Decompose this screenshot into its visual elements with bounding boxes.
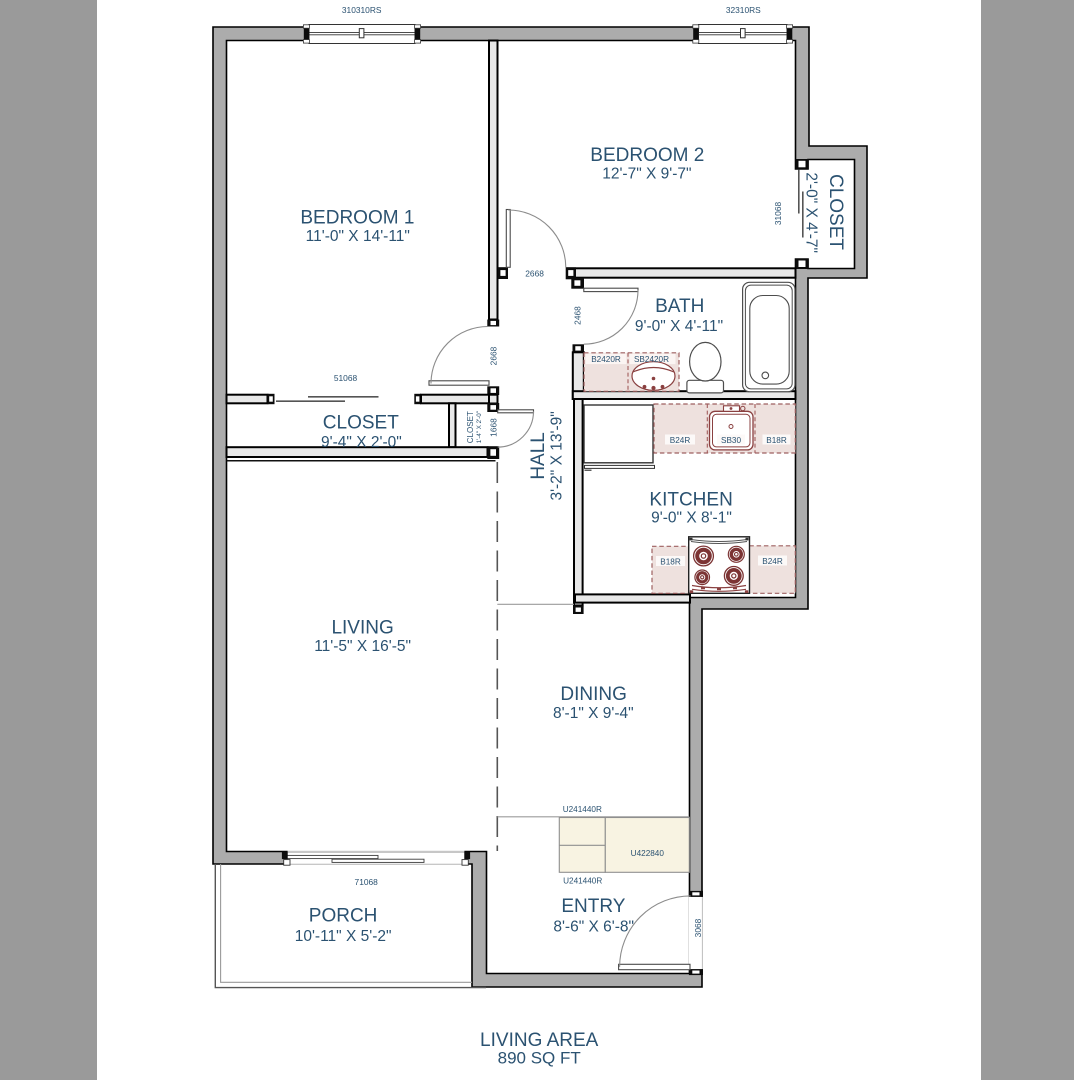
svg-text:31068: 31068 [773, 202, 783, 226]
svg-text:LIVING: LIVING [331, 618, 393, 639]
svg-text:ENTRY: ENTRY [561, 896, 625, 917]
svg-text:2'-0" X 4'-7": 2'-0" X 4'-7" [803, 172, 820, 253]
svg-text:2468: 2468 [573, 306, 583, 325]
svg-text:DINING: DINING [560, 684, 627, 705]
svg-text:9'-0" X 4'-11": 9'-0" X 4'-11" [635, 318, 723, 335]
svg-text:CLOSET: CLOSET [466, 411, 475, 443]
svg-text:51068: 51068 [334, 373, 358, 383]
svg-text:U422840: U422840 [631, 849, 665, 858]
svg-text:PORCH: PORCH [309, 906, 378, 927]
svg-text:9'-4" X 2'-0": 9'-4" X 2'-0" [321, 434, 402, 451]
svg-text:CLOSET: CLOSET [323, 413, 399, 434]
svg-text:U241440R: U241440R [563, 877, 602, 886]
svg-text:9'-0" X 8'-1": 9'-0" X 8'-1" [651, 509, 732, 526]
svg-text:8'-1" X 9'-4": 8'-1" X 9'-4" [553, 705, 634, 722]
svg-text:KITCHEN: KITCHEN [649, 489, 732, 510]
svg-text:B2420R: B2420R [591, 355, 621, 364]
svg-text:32310RS: 32310RS [726, 5, 761, 15]
svg-text:3068: 3068 [693, 918, 703, 937]
svg-text:8'-6" X 6'-8": 8'-6" X 6'-8" [553, 918, 634, 935]
svg-text:B24R: B24R [670, 436, 691, 445]
svg-text:2668: 2668 [489, 346, 499, 365]
svg-text:310310RS: 310310RS [342, 5, 382, 15]
svg-text:890 SQ FT: 890 SQ FT [498, 1049, 581, 1068]
svg-text:2668: 2668 [525, 269, 544, 279]
svg-text:BEDROOM 2: BEDROOM 2 [590, 145, 704, 166]
svg-text:B24R: B24R [762, 557, 783, 566]
svg-text:1668: 1668 [489, 418, 499, 437]
svg-text:SB30: SB30 [721, 436, 741, 445]
svg-text:CLOSET: CLOSET [825, 174, 846, 250]
svg-text:B18R: B18R [660, 558, 681, 567]
svg-text:11'-5" X 16'-5": 11'-5" X 16'-5" [314, 638, 411, 655]
svg-text:HALL: HALL [528, 432, 549, 480]
svg-text:1'-4" X 2'-0": 1'-4" X 2'-0" [476, 411, 483, 443]
svg-text:SB2420R: SB2420R [634, 355, 669, 364]
svg-text:11'-0" X 14'-11": 11'-0" X 14'-11" [306, 228, 410, 245]
svg-text:BATH: BATH [655, 296, 704, 317]
svg-text:10'-11" X 5'-2": 10'-11" X 5'-2" [295, 928, 392, 945]
svg-text:B18R: B18R [766, 436, 787, 445]
svg-text:U241440R: U241440R [563, 805, 602, 814]
svg-text:12'-7" X 9'-7": 12'-7" X 9'-7" [602, 165, 691, 182]
svg-text:71068: 71068 [355, 877, 379, 887]
svg-text:3'-2" X 13'-9": 3'-2" X 13'-9" [549, 411, 566, 500]
svg-text:BEDROOM 1: BEDROOM 1 [300, 208, 414, 229]
